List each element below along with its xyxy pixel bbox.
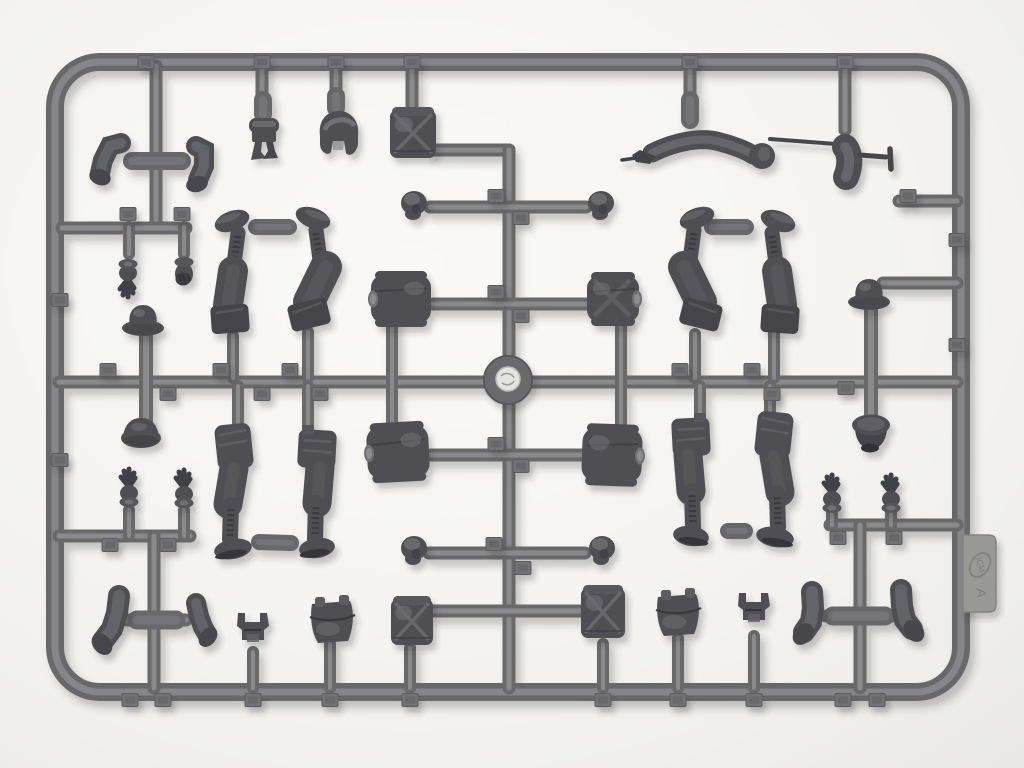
svg-text:A: A [973,588,989,598]
